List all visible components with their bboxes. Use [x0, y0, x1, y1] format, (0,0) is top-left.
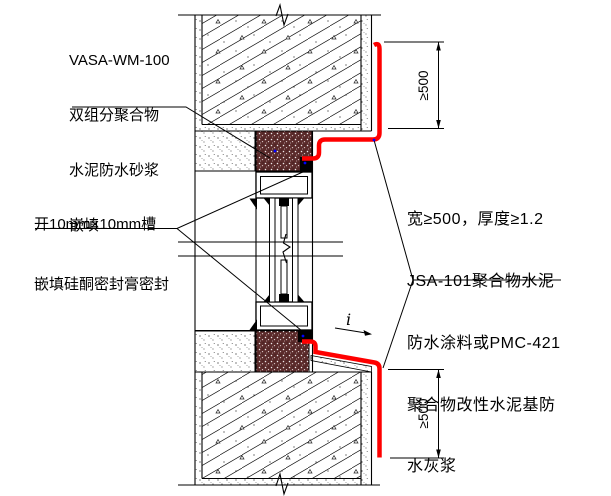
leader-dot	[373, 139, 376, 142]
lower-wall-left-render-strip	[195, 372, 202, 485]
annotation-line: JSA-101聚合物水泥	[407, 272, 561, 293]
annotation-line: 聚合物改性水泥基防	[407, 396, 561, 417]
annotation-line: 嵌填硅酮密封膏密封	[34, 275, 169, 295]
annotation-line: VASA-WM-100	[69, 52, 170, 70]
glazing-gasket-bottom	[279, 294, 289, 302]
lower-wall-aggregate	[202, 372, 361, 478]
window-head-frame-inner	[261, 177, 308, 195]
annotation-line: 防水涂料或PMC-421	[407, 334, 561, 355]
dim-arrow-up	[436, 42, 441, 51]
upper-wall-section	[178, 5, 381, 131]
gasket-wedge-bottom-left	[264, 295, 270, 303]
top-joint-fill	[195, 131, 313, 171]
annotation-line: 开10mm×10mm槽	[34, 215, 169, 235]
lower-wall-right-render-strip	[361, 372, 370, 485]
sash-stile-left	[270, 198, 276, 302]
slope-arrowhead	[364, 330, 373, 336]
leader-dot	[302, 335, 305, 338]
bottom-leveling-mortar-block	[195, 331, 255, 372]
upper-wall-aggregate	[202, 15, 361, 124]
slope-indicator: i	[335, 310, 372, 336]
upper-wall-bottom-render-strip	[202, 125, 361, 132]
annotation-right: 宽≥500，厚度≥1.2 JSA-101聚合物水泥 防水涂料或PMC-421 聚…	[407, 169, 561, 496]
gasket-wedge-top-right	[298, 198, 305, 206]
annotation-line: 水灰浆	[407, 457, 561, 478]
section-break-band	[178, 234, 343, 263]
leader-dot	[304, 162, 307, 165]
sash-stile-right	[293, 198, 299, 302]
top-leveling-mortar-block	[195, 131, 255, 171]
glazing-lower	[281, 260, 287, 294]
dim-arrow-down	[436, 120, 441, 129]
gasket-wedge-bottom-right	[298, 295, 305, 303]
interior-sealant-fillet-bottom	[250, 320, 258, 331]
annotation-line: 双组分聚合物	[69, 107, 170, 125]
window-section	[178, 172, 343, 330]
annotation-line: 宽≥500，厚度≥1.2	[407, 210, 561, 231]
bottom-joint-fill	[195, 330, 312, 372]
cad-detail-drawing: ≥500 ≥500 i VASA-WM-100 双组分聚合物 水泥防水砂浆 嵌填…	[0, 0, 611, 496]
annotation-mid-left: 开10mm×10mm槽 嵌填硅酮密封膏密封	[34, 175, 169, 315]
leader-dot	[274, 150, 277, 153]
upper-wall-right-render-strip	[361, 15, 370, 131]
gasket-wedge-top-left	[264, 198, 270, 206]
slope-label: i	[346, 310, 351, 329]
lower-wall-section	[178, 356, 380, 495]
dimension-top-label: ≥500	[416, 71, 431, 101]
glazing-upper	[281, 206, 287, 238]
glazing-gasket-top	[279, 198, 289, 206]
dimension-top: ≥500	[384, 42, 444, 129]
